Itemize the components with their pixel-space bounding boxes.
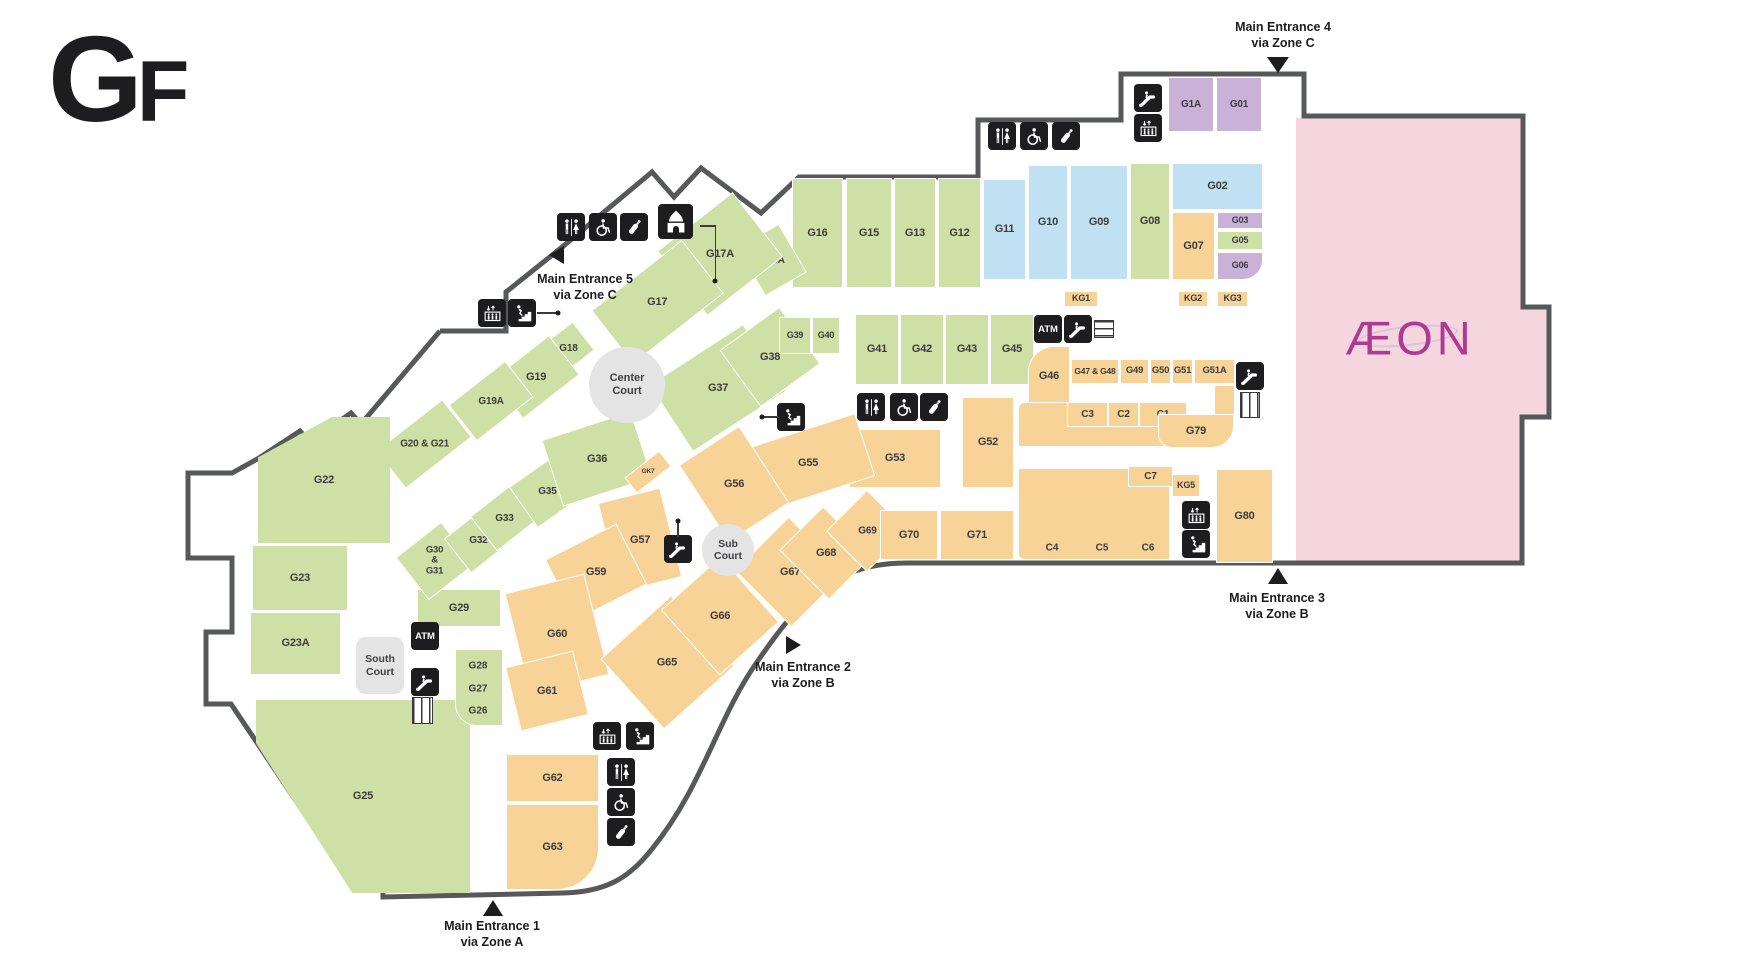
room-label-G68: G68 <box>816 547 836 559</box>
room-label-G51: G51 <box>1174 366 1191 376</box>
leader-dot <box>713 279 718 284</box>
room-label-G69: G69 <box>858 526 876 537</box>
stairs-icon <box>1182 530 1210 558</box>
room-G41: G41 <box>855 314 899 385</box>
room-G51A: G51A <box>1194 359 1235 384</box>
center-court: CenterCourt <box>589 347 665 423</box>
room-label-G49: G49 <box>1126 366 1143 376</box>
center-court-label: Court <box>612 385 641 398</box>
room-label-G39: G39 <box>787 331 803 341</box>
room-label-C2: C2 <box>1117 409 1129 420</box>
restroom-icon <box>607 758 635 786</box>
restroom-icon <box>988 122 1016 150</box>
room-G39: G39 <box>779 317 811 354</box>
room-label-G23: G23 <box>290 572 310 584</box>
wheelchair-icon <box>607 788 635 816</box>
stairs-icon <box>777 403 805 431</box>
room-label-C7: C7 <box>1144 471 1156 482</box>
wheelchair-icon <box>589 213 617 241</box>
main-entrance-2-label: Main Entrance 2via Zone B <box>723 660 883 691</box>
room-label-G05: G05 <box>1232 236 1248 246</box>
escalator-icon <box>1134 84 1162 112</box>
room-G46: G46 <box>1028 346 1070 406</box>
room-label-G40: G40 <box>818 331 834 341</box>
label-G26: G26 <box>469 706 488 717</box>
leader-line <box>677 523 679 537</box>
atm-icon-label: ATM <box>415 631 435 642</box>
room-C3: C3 <box>1067 402 1108 427</box>
room-G02: G02 <box>1172 163 1263 210</box>
room-G22: G22 <box>258 417 390 543</box>
floor-title: GF <box>48 18 183 140</box>
room-label-G62: G62 <box>542 772 562 784</box>
atm-icon-label: ATM <box>1038 324 1058 335</box>
nursing-icon <box>620 213 648 241</box>
escalator-icon <box>664 535 692 563</box>
room-label-GK7: GK7 <box>642 468 655 475</box>
shaft <box>1094 320 1114 338</box>
room-label-G50: G50 <box>1152 366 1169 376</box>
room-label-G22: G22 <box>314 474 334 486</box>
room-label-G17A: G17A <box>706 248 734 260</box>
sub-court-label: Sub <box>718 538 738 550</box>
room-label-G71: G71 <box>967 529 987 541</box>
main-entrance-4-title: Main Entrance 4 <box>1203 20 1363 36</box>
room-G09: G09 <box>1070 165 1128 280</box>
leader-line <box>764 416 779 418</box>
main-entrance-5-arrow-icon <box>549 246 564 264</box>
room-label-G12: G12 <box>949 227 969 239</box>
label-C6: C6 <box>1142 543 1155 554</box>
room-label-G15: G15 <box>859 227 879 239</box>
room-label-G36: G36 <box>587 453 607 465</box>
nursing-icon <box>607 818 635 846</box>
room-label-G19A: G19A <box>478 396 503 407</box>
room-G42: G42 <box>900 314 944 385</box>
restroom-icon <box>857 393 885 421</box>
anchor-store-aeon-notch <box>1521 307 1549 417</box>
main-entrance-1-zone: via Zone A <box>412 935 572 951</box>
room-KG5: KG5 <box>1172 474 1200 497</box>
room-KG3: KG3 <box>1217 291 1248 307</box>
room-label-G61: G61 <box>537 685 557 697</box>
wheelchair-icon <box>890 393 918 421</box>
room-label-G59: G59 <box>586 566 606 578</box>
label-G28: G28 <box>469 661 488 672</box>
room-label-G25: G25 <box>353 790 373 802</box>
room-label-G52: G52 <box>978 436 998 448</box>
main-entrance-3-arrow-icon <box>1268 568 1288 584</box>
label-G27: G27 <box>469 684 488 695</box>
room-label-G57: G57 <box>630 534 650 546</box>
shaft <box>412 697 433 724</box>
main-entrance-5-title: Main Entrance 5 <box>505 272 665 288</box>
room-corridorC <box>1012 446 1236 469</box>
room-label-G03: G03 <box>1232 216 1248 226</box>
main-entrance-4-zone: via Zone C <box>1203 36 1363 52</box>
room-label-G33: G33 <box>495 513 513 524</box>
room-G11: G11 <box>983 179 1026 280</box>
room-label-G80: G80 <box>1234 510 1254 522</box>
wheelchair-icon <box>1020 122 1048 150</box>
room-G07: G07 <box>1172 212 1215 280</box>
room-G80: G80 <box>1216 469 1273 563</box>
room-G49: G49 <box>1120 359 1149 384</box>
room-label-G41: G41 <box>867 343 887 355</box>
escalator-icon <box>1236 362 1264 390</box>
elevator-icon <box>1134 114 1162 142</box>
restroom-icon <box>557 213 585 241</box>
room-label-G35: G35 <box>538 486 556 497</box>
room-KG1: KG1 <box>1064 291 1098 307</box>
main-entrance-2-arrow-icon <box>786 636 801 654</box>
room-label-G10: G10 <box>1038 216 1058 228</box>
room-label-G70: G70 <box>899 529 919 541</box>
room-label-KG5: KG5 <box>1177 481 1195 491</box>
room-G08: G08 <box>1130 163 1170 280</box>
room-label-G16: G16 <box>807 227 827 239</box>
room-label-G65: G65 <box>657 656 677 668</box>
main-entrance-5-label: Main Entrance 5via Zone C <box>505 272 665 303</box>
room-G01: G01 <box>1216 77 1262 132</box>
escalator-icon <box>1064 315 1092 343</box>
room-label-G79: G79 <box>1186 425 1206 437</box>
room-label-G66: G66 <box>710 610 730 622</box>
room-G63: G63 <box>506 804 599 890</box>
stairs-icon <box>626 722 654 750</box>
room-label-G1A: G1A <box>1181 99 1201 110</box>
sub-court-label: Court <box>714 550 742 562</box>
main-entrance-1-label: Main Entrance 1via Zone A <box>412 919 572 950</box>
main-entrance-4-label: Main Entrance 4via Zone C <box>1203 20 1363 51</box>
elevator-icon <box>478 299 506 327</box>
room-label-G38: G38 <box>760 351 780 363</box>
shaft <box>1240 392 1260 418</box>
elevator-icon <box>593 722 621 750</box>
leader-dot <box>556 311 561 316</box>
room-label-G45: G45 <box>1002 343 1022 355</box>
room-label-G07: G07 <box>1183 240 1203 252</box>
mall-floorplan: GF ÆON G1AG01G02G03G05G06G07G08G09G10G11… <box>0 0 1746 958</box>
room-label-G43: G43 <box>957 343 977 355</box>
main-entrance-1-arrow-icon <box>483 900 503 916</box>
room-label-G20-21: G20 & G21 <box>400 439 449 450</box>
room-label-G56: G56 <box>724 478 744 490</box>
room-label-KG3: KG3 <box>1224 294 1242 304</box>
atm-icon: ATM <box>411 622 439 650</box>
room-G13: G13 <box>894 178 936 288</box>
room-label-G19: G19 <box>526 371 546 383</box>
room-G15: G15 <box>846 178 892 288</box>
room-label-G06: G06 <box>1232 261 1248 271</box>
room-label-G09: G09 <box>1089 216 1109 228</box>
room-label-G63: G63 <box>542 841 562 853</box>
room-G70: G70 <box>880 510 938 560</box>
room-G43: G43 <box>945 314 989 385</box>
room-label-G13: G13 <box>905 227 925 239</box>
center-court-label: Center <box>610 372 645 385</box>
main-entrance-3-label: Main Entrance 3via Zone B <box>1197 591 1357 622</box>
main-entrance-3-title: Main Entrance 3 <box>1197 591 1357 607</box>
room-label-G55: G55 <box>798 457 818 469</box>
atm-icon: ATM <box>1034 315 1062 343</box>
room-G12: G12 <box>938 178 981 288</box>
leader-line <box>537 312 557 314</box>
room-G51A-stub <box>1214 385 1235 416</box>
room-label-G47-48: G47 & G48 <box>1074 367 1115 376</box>
room-label-G11: G11 <box>995 223 1015 235</box>
south-court-label: Court <box>366 666 394 678</box>
room-KG2: KG2 <box>1178 291 1208 307</box>
room-label-G29: G29 <box>449 602 469 614</box>
label-C5: C5 <box>1096 543 1109 554</box>
room-label-G51A: G51A <box>1202 366 1226 376</box>
escalator-icon <box>411 668 439 696</box>
main-entrance-2-zone: via Zone B <box>723 676 883 692</box>
elevator-icon <box>1182 501 1210 529</box>
floor-letter-g: G <box>48 11 137 147</box>
main-entrance-5-zone: via Zone C <box>505 288 665 304</box>
room-G03: G03 <box>1217 212 1263 229</box>
room-C7: C7 <box>1128 466 1173 487</box>
room-G05: G05 <box>1217 231 1263 250</box>
main-entrance-2-title: Main Entrance 2 <box>723 660 883 676</box>
room-G1A: G1A <box>1168 77 1214 132</box>
room-label-G08: G08 <box>1140 215 1160 227</box>
room-label-G42: G42 <box>912 343 932 355</box>
room-G23: G23 <box>252 545 348 611</box>
room-G71: G71 <box>940 510 1014 560</box>
leader-dot <box>676 519 681 524</box>
main-entrance-3-zone: via Zone B <box>1197 607 1357 623</box>
south-court: SouthCourt <box>356 637 404 694</box>
main-entrance-4-arrow-icon <box>1267 57 1289 73</box>
room-G40: G40 <box>812 317 840 354</box>
room-G25: G25 <box>256 700 470 893</box>
leader-dot <box>760 415 765 420</box>
label-C4: C4 <box>1046 543 1059 554</box>
nursing-icon <box>920 393 948 421</box>
room-G51: G51 <box>1172 359 1193 384</box>
room-label-KG2: KG2 <box>1184 294 1202 304</box>
prayer-icon <box>658 204 693 239</box>
room-label-G46: G46 <box>1039 370 1059 382</box>
room-G52: G52 <box>962 397 1014 488</box>
room-label-C3: C3 <box>1081 409 1093 420</box>
nursing-icon <box>1052 122 1080 150</box>
room-label-KG1: KG1 <box>1072 294 1090 304</box>
leader-line <box>715 225 717 280</box>
room-label-G60: G60 <box>547 628 567 640</box>
room-G06: G06 <box>1217 252 1263 280</box>
sub-court: SubCourt <box>702 524 754 576</box>
room-G47-48: G47 & G48 <box>1071 359 1119 384</box>
room-C2: C2 <box>1108 402 1139 427</box>
room-G50: G50 <box>1150 359 1171 384</box>
aeon-logo: ÆON <box>1345 311 1475 366</box>
room-G10: G10 <box>1028 165 1068 280</box>
room-label-G53: G53 <box>885 452 905 464</box>
room-G62: G62 <box>506 754 599 802</box>
room-label-G01: G01 <box>1230 99 1248 110</box>
room-G23A: G23A <box>250 612 341 675</box>
room-label-G30-31: G30 & G31 <box>426 545 443 576</box>
south-court-label: South <box>365 653 395 665</box>
room-label-G23A: G23A <box>282 637 310 649</box>
room-G79: G79 <box>1158 414 1234 448</box>
main-entrance-1-title: Main Entrance 1 <box>412 919 572 935</box>
room-label-G02: G02 <box>1207 180 1227 192</box>
room-label-G37: G37 <box>708 382 728 394</box>
